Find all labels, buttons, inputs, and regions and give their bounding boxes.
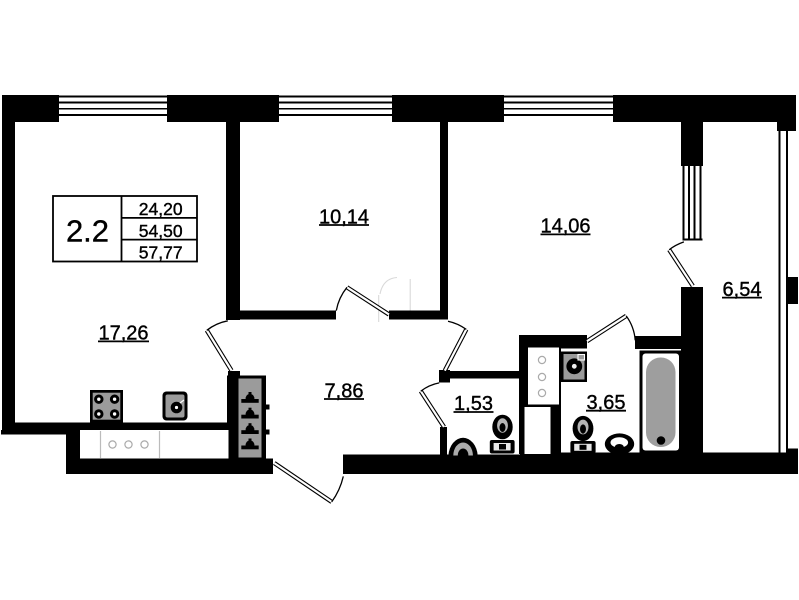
svg-text:57,77: 57,77	[139, 243, 183, 263]
svg-text:54,50: 54,50	[139, 221, 183, 241]
svg-text:2.2: 2.2	[66, 214, 109, 249]
svg-text:24,20: 24,20	[139, 199, 183, 219]
